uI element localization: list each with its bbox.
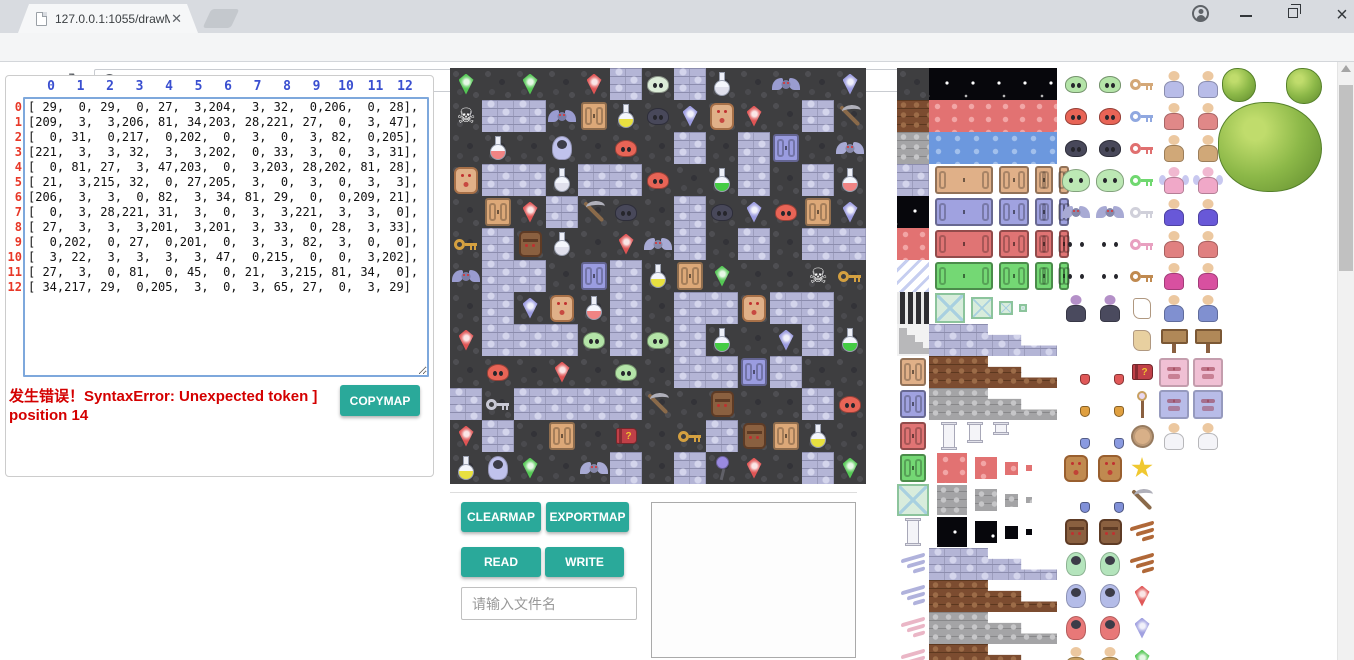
map-tile[interactable] (642, 228, 674, 260)
tileset-item-tile[interactable]: ? (1126, 356, 1158, 388)
map-tile[interactable] (450, 164, 482, 196)
tileset-big-tile[interactable] (929, 612, 1057, 644)
tileset-big-tile[interactable] (929, 580, 1057, 612)
tileset-terrain-tile[interactable] (897, 548, 929, 580)
map-tile[interactable] (802, 132, 834, 164)
copymap-button[interactable]: COPYMAP (340, 385, 420, 416)
tileset-item-tile[interactable] (1126, 132, 1158, 164)
tileset-creature-tile[interactable] (1094, 292, 1126, 324)
map-tile[interactable] (706, 68, 738, 100)
map-tile[interactable] (770, 68, 802, 100)
tileset-creature-tile[interactable] (1094, 100, 1126, 132)
map-tile[interactable] (578, 260, 610, 292)
filename-input[interactable] (461, 587, 637, 620)
map-tile[interactable] (642, 324, 674, 356)
map-tile[interactable] (738, 388, 770, 420)
map-tile[interactable] (834, 228, 866, 260)
map-tile[interactable] (770, 356, 802, 388)
tileset-item-tile[interactable] (1126, 68, 1158, 100)
tileset-creature-tile[interactable] (1094, 644, 1126, 660)
tileset-terrain-tile[interactable] (897, 516, 929, 548)
tileset-tree-tile[interactable] (1286, 68, 1322, 104)
map-tile[interactable] (642, 100, 674, 132)
tileset-big-tile[interactable] (929, 68, 1057, 100)
tileset-creature-tile[interactable] (1060, 196, 1092, 228)
map-tile[interactable] (450, 68, 482, 100)
tileset-creature-tile[interactable] (1094, 68, 1126, 100)
map-tile[interactable] (834, 324, 866, 356)
map-tile[interactable] (642, 260, 674, 292)
map-tile[interactable] (546, 132, 578, 164)
tileset-character-tile[interactable] (1192, 196, 1224, 228)
tileset-character-tile[interactable] (1158, 324, 1190, 356)
map-tile[interactable] (514, 100, 546, 132)
tileset-creature-tile[interactable] (1094, 260, 1126, 292)
map-tile[interactable] (770, 100, 802, 132)
map-tile[interactable] (706, 196, 738, 228)
map-tile[interactable] (514, 452, 546, 484)
tileset-item-tile[interactable] (1126, 292, 1158, 324)
tileset-creature-tile[interactable]: ☠ (1094, 484, 1126, 516)
map-tile[interactable] (706, 164, 738, 196)
map-tile[interactable] (674, 324, 706, 356)
tileset-creature-tile[interactable] (1094, 516, 1126, 548)
map-tile[interactable] (610, 100, 642, 132)
tileset-character-tile[interactable] (1192, 420, 1224, 452)
tileset-creature-tile[interactable] (1060, 228, 1092, 260)
map-tile[interactable] (834, 420, 866, 452)
map-tile[interactable] (834, 196, 866, 228)
tileset-terrain-tile[interactable] (897, 292, 929, 324)
tileset-character-tile[interactable] (1192, 324, 1224, 356)
map-tile[interactable] (450, 420, 482, 452)
tileset-item-tile[interactable] (1126, 516, 1158, 548)
map-tile[interactable] (546, 196, 578, 228)
map-tile[interactable]: ☠ (802, 260, 834, 292)
tileset-terrain-tile[interactable] (897, 484, 929, 516)
map-tile[interactable] (738, 292, 770, 324)
tileset-item-tile[interactable] (1126, 100, 1158, 132)
tileset-creature-tile[interactable] (1094, 132, 1126, 164)
map-tile[interactable] (450, 452, 482, 484)
map-tile[interactable] (834, 356, 866, 388)
map-tile[interactable] (706, 452, 738, 484)
map-tile[interactable] (738, 196, 770, 228)
map-tile[interactable]: ? (610, 420, 642, 452)
map-tile[interactable] (482, 420, 514, 452)
tileset-character-tile[interactable] (1158, 68, 1190, 100)
map-tile[interactable] (578, 388, 610, 420)
tileset-creature-tile[interactable] (1094, 164, 1126, 196)
map-tile[interactable] (546, 68, 578, 100)
map-tile[interactable] (546, 388, 578, 420)
tileset-item-tile[interactable] (1126, 228, 1158, 260)
map-tile[interactable] (642, 388, 674, 420)
tileset-big-tile[interactable] (929, 356, 1057, 388)
map-tile[interactable] (706, 324, 738, 356)
map-tile[interactable] (546, 356, 578, 388)
tileset-terrain-tile[interactable] (897, 228, 929, 260)
map-tile[interactable] (674, 292, 706, 324)
map-tile[interactable] (610, 292, 642, 324)
tileset-creature-tile[interactable] (1060, 68, 1092, 100)
tileset-big-tile[interactable] (929, 484, 1057, 516)
map-tile[interactable] (706, 132, 738, 164)
map-tile[interactable] (770, 228, 802, 260)
map-canvas[interactable]: ☠☠? (450, 68, 866, 484)
tileset-item-tile[interactable] (1126, 196, 1158, 228)
map-tile[interactable] (546, 164, 578, 196)
write-button[interactable]: WRITE (545, 547, 624, 577)
map-tile[interactable] (802, 420, 834, 452)
tileset-creature-tile[interactable] (1060, 292, 1092, 324)
map-tile[interactable] (802, 100, 834, 132)
map-tile[interactable] (610, 260, 642, 292)
map-tile[interactable] (738, 420, 770, 452)
map-tile[interactable] (706, 228, 738, 260)
map-tile[interactable] (642, 68, 674, 100)
map-tile[interactable] (482, 132, 514, 164)
map-tile[interactable] (642, 196, 674, 228)
tileset-creature-tile[interactable] (1060, 516, 1092, 548)
map-tile[interactable] (546, 324, 578, 356)
map-tile[interactable] (610, 228, 642, 260)
map-tile[interactable] (802, 388, 834, 420)
map-tile[interactable] (578, 452, 610, 484)
tileset-creature-tile[interactable] (1060, 260, 1092, 292)
map-tile[interactable] (642, 356, 674, 388)
map-tile[interactable] (482, 452, 514, 484)
tileset-creature-tile[interactable]: ☠ (1060, 420, 1092, 452)
tileset-character-tile[interactable] (1158, 420, 1190, 452)
tileset-character-tile[interactable] (1158, 292, 1190, 324)
tileset-tree-tile[interactable] (1222, 68, 1256, 102)
tileset-character-tile[interactable] (1158, 164, 1190, 196)
map-tile[interactable] (514, 228, 546, 260)
map-tile[interactable] (450, 132, 482, 164)
map-tile[interactable] (674, 196, 706, 228)
map-tile[interactable] (578, 356, 610, 388)
tileset-terrain-tile[interactable] (897, 100, 929, 132)
map-tile[interactable] (514, 68, 546, 100)
map-tile[interactable] (482, 68, 514, 100)
tileset-item-tile[interactable] (1126, 260, 1158, 292)
map-tile[interactable] (802, 452, 834, 484)
map-tile[interactable] (610, 164, 642, 196)
tileset-item-tile[interactable] (1126, 452, 1158, 484)
tileset-terrain-tile[interactable] (897, 452, 929, 484)
tileset-creature-tile[interactable]: ☠ (1094, 324, 1126, 356)
map-tile[interactable] (802, 356, 834, 388)
tileset-creature-tile[interactable]: ☠ (1094, 356, 1126, 388)
tileset-terrain-tile[interactable] (897, 612, 929, 644)
window-minimize-button[interactable] (1240, 15, 1252, 17)
map-tile[interactable] (834, 260, 866, 292)
map-tile[interactable] (834, 292, 866, 324)
tileset-character-tile[interactable] (1192, 388, 1224, 420)
tileset-creature-tile[interactable] (1094, 580, 1126, 612)
tileset-terrain-tile[interactable] (897, 164, 929, 196)
tileset-character-tile[interactable] (1158, 100, 1190, 132)
tileset-item-tile[interactable] (1126, 612, 1158, 644)
map-tile[interactable] (546, 292, 578, 324)
map-tile[interactable] (642, 452, 674, 484)
map-tile[interactable] (450, 356, 482, 388)
map-tile[interactable] (802, 68, 834, 100)
map-tile[interactable] (674, 228, 706, 260)
map-tile[interactable] (642, 132, 674, 164)
tileset-creature-tile[interactable]: ☠ (1094, 420, 1126, 452)
map-tile[interactable] (770, 132, 802, 164)
map-tile[interactable] (834, 100, 866, 132)
tileset-character-tile[interactable] (1158, 132, 1190, 164)
tileset-big-tile[interactable] (929, 452, 1057, 484)
tileset-character-tile[interactable] (1192, 228, 1224, 260)
map-tile[interactable] (770, 452, 802, 484)
matrix-textarea[interactable] (23, 97, 429, 377)
map-tile[interactable] (450, 228, 482, 260)
map-tile[interactable] (546, 452, 578, 484)
map-tile[interactable] (738, 68, 770, 100)
map-tile[interactable] (514, 356, 546, 388)
map-tile[interactable] (546, 420, 578, 452)
tileset-character-tile[interactable] (1158, 260, 1190, 292)
map-tile[interactable] (610, 196, 642, 228)
map-tile[interactable] (770, 388, 802, 420)
window-restore-button[interactable] (1288, 8, 1298, 18)
map-tile[interactable] (482, 228, 514, 260)
tileset-character-tile[interactable] (1192, 68, 1224, 100)
tileset-tree-tile[interactable] (1218, 102, 1322, 192)
tileset-character-tile[interactable] (1158, 228, 1190, 260)
map-tile[interactable] (514, 132, 546, 164)
map-tile[interactable] (578, 324, 610, 356)
tileset-terrain-tile[interactable] (897, 388, 929, 420)
output-box[interactable] (651, 502, 856, 658)
map-tile[interactable]: ☠ (450, 100, 482, 132)
map-tile[interactable] (770, 420, 802, 452)
window-close-button[interactable]: × (1332, 4, 1352, 26)
map-tile[interactable] (802, 196, 834, 228)
tileset-creature-tile[interactable]: ☠ (1060, 484, 1092, 516)
tileset-creature-tile[interactable] (1060, 452, 1092, 484)
map-tile[interactable] (514, 420, 546, 452)
browser-tab[interactable]: 127.0.0.1:1055/drawMa ✕ (18, 4, 198, 33)
map-tile[interactable] (578, 228, 610, 260)
map-tile[interactable] (578, 292, 610, 324)
map-tile[interactable] (738, 452, 770, 484)
tileset-creature-tile[interactable] (1060, 644, 1092, 660)
map-tile[interactable] (706, 388, 738, 420)
tileset-big-tile[interactable] (929, 228, 1057, 260)
tileset-creature-tile[interactable]: ☠ (1060, 388, 1092, 420)
tileset-big-tile[interactable] (929, 132, 1057, 164)
map-tile[interactable] (578, 132, 610, 164)
tileset-big-tile[interactable] (929, 388, 1057, 420)
map-tile[interactable] (706, 292, 738, 324)
map-tile[interactable] (482, 324, 514, 356)
map-tile[interactable] (834, 132, 866, 164)
tileset-item-tile[interactable] (1126, 324, 1158, 356)
map-tile[interactable] (450, 388, 482, 420)
map-tile[interactable] (514, 292, 546, 324)
map-tile[interactable] (482, 100, 514, 132)
tileset-big-tile[interactable] (929, 164, 1057, 196)
map-tile[interactable] (450, 324, 482, 356)
map-tile[interactable] (642, 164, 674, 196)
tileset-big-tile[interactable] (929, 292, 1057, 324)
map-tile[interactable] (578, 100, 610, 132)
tileset-terrain-tile[interactable] (897, 644, 929, 660)
tileset-terrain-tile[interactable] (897, 132, 929, 164)
tileset-big-tile[interactable] (929, 548, 1057, 580)
map-tile[interactable] (578, 164, 610, 196)
map-tile[interactable] (610, 356, 642, 388)
tileset-big-tile[interactable] (929, 420, 1057, 452)
tileset-item-tile[interactable] (1126, 164, 1158, 196)
tileset-big-tile[interactable] (929, 644, 1057, 660)
map-tile[interactable] (514, 260, 546, 292)
map-tile[interactable] (578, 420, 610, 452)
clearmap-button[interactable]: CLEARMAP (461, 502, 541, 532)
map-tile[interactable] (610, 388, 642, 420)
tileset-item-tile[interactable] (1126, 420, 1158, 452)
tileset-big-tile[interactable] (929, 100, 1057, 132)
map-tile[interactable] (738, 356, 770, 388)
tileset-creature-tile[interactable] (1060, 100, 1092, 132)
map-tile[interactable] (738, 164, 770, 196)
map-tile[interactable] (770, 260, 802, 292)
map-tile[interactable] (674, 260, 706, 292)
map-tile[interactable] (674, 100, 706, 132)
read-button[interactable]: READ (461, 547, 541, 577)
tileset-terrain-tile[interactable] (897, 260, 929, 292)
map-tile[interactable] (770, 196, 802, 228)
map-tile[interactable] (770, 324, 802, 356)
tileset-character-tile[interactable] (1192, 292, 1224, 324)
map-tile[interactable] (514, 388, 546, 420)
map-tile[interactable] (546, 100, 578, 132)
tileset-character-tile[interactable] (1192, 356, 1224, 388)
scrollbar-up-arrow-icon[interactable] (1341, 65, 1351, 72)
new-tab-button[interactable] (203, 9, 240, 28)
map-tile[interactable] (770, 164, 802, 196)
tileset-item-tile[interactable] (1126, 580, 1158, 612)
profile-icon[interactable] (1192, 5, 1209, 22)
map-tile[interactable] (706, 420, 738, 452)
map-tile[interactable] (482, 164, 514, 196)
tileset-creature-tile[interactable] (1060, 580, 1092, 612)
map-tile[interactable] (706, 356, 738, 388)
map-tile[interactable] (674, 132, 706, 164)
page-scrollbar[interactable] (1337, 62, 1354, 660)
map-tile[interactable] (674, 420, 706, 452)
tileset-item-tile[interactable] (1126, 484, 1158, 516)
tileset-terrain-tile[interactable] (897, 356, 929, 388)
map-tile[interactable] (610, 68, 642, 100)
tileset-creature-tile[interactable]: ☠ (1060, 324, 1092, 356)
map-tile[interactable] (834, 452, 866, 484)
tileset-creature-tile[interactable] (1094, 196, 1126, 228)
map-tile[interactable] (674, 164, 706, 196)
tileset-creature-tile[interactable] (1060, 132, 1092, 164)
tileset-character-tile[interactable] (1158, 196, 1190, 228)
map-tile[interactable] (802, 228, 834, 260)
map-tile[interactable] (450, 196, 482, 228)
map-tile[interactable] (674, 388, 706, 420)
map-tile[interactable] (674, 356, 706, 388)
tileset-terrain-tile[interactable] (897, 420, 929, 452)
map-tile[interactable] (706, 100, 738, 132)
tileset-creature-tile[interactable] (1060, 612, 1092, 644)
map-tile[interactable] (834, 388, 866, 420)
map-tile[interactable] (706, 260, 738, 292)
map-tile[interactable] (738, 260, 770, 292)
tileset-terrain-tile[interactable] (897, 324, 929, 356)
tileset-creature-tile[interactable] (1060, 548, 1092, 580)
tileset-item-tile[interactable] (1126, 388, 1158, 420)
tileset-creature-tile[interactable] (1094, 228, 1126, 260)
tileset-creature-tile[interactable] (1060, 164, 1092, 196)
map-tile[interactable] (514, 196, 546, 228)
map-tile[interactable] (482, 388, 514, 420)
map-tile[interactable] (482, 260, 514, 292)
tileset-big-tile[interactable] (929, 324, 1057, 356)
map-tile[interactable] (834, 68, 866, 100)
map-tile[interactable] (610, 132, 642, 164)
tab-close-icon[interactable]: ✕ (171, 12, 182, 25)
map-tile[interactable] (738, 132, 770, 164)
exportmap-button[interactable]: EXPORTMAP (546, 502, 629, 532)
map-tile[interactable] (514, 164, 546, 196)
map-tile[interactable] (482, 292, 514, 324)
map-tile[interactable] (546, 228, 578, 260)
map-tile[interactable] (482, 196, 514, 228)
tileset-terrain-tile[interactable] (897, 196, 929, 228)
tileset-item-tile[interactable] (1126, 548, 1158, 580)
tileset-item-tile[interactable] (1126, 644, 1158, 660)
tileset-panel[interactable]: ☠☠☠☠☠☠☠☠☠☠? (897, 68, 1322, 660)
map-tile[interactable] (642, 292, 674, 324)
tileset-character-tile[interactable] (1158, 388, 1190, 420)
map-tile[interactable] (802, 164, 834, 196)
tileset-terrain-tile[interactable] (897, 580, 929, 612)
map-tile[interactable] (450, 260, 482, 292)
tileset-creature-tile[interactable]: ☠ (1060, 356, 1092, 388)
map-tile[interactable] (450, 292, 482, 324)
map-tile[interactable] (802, 292, 834, 324)
map-tile[interactable] (834, 164, 866, 196)
map-tile[interactable] (770, 292, 802, 324)
tileset-creature-tile[interactable] (1094, 452, 1126, 484)
tileset-creature-tile[interactable] (1094, 612, 1126, 644)
tileset-character-tile[interactable] (1158, 356, 1190, 388)
map-tile[interactable] (642, 420, 674, 452)
map-tile[interactable] (610, 452, 642, 484)
tileset-creature-tile[interactable]: ☠ (1094, 388, 1126, 420)
map-tile[interactable] (738, 228, 770, 260)
map-tile[interactable] (674, 452, 706, 484)
tileset-terrain-tile[interactable] (897, 68, 929, 100)
tileset-big-tile[interactable] (929, 196, 1057, 228)
tileset-big-tile[interactable] (929, 516, 1057, 548)
map-tile[interactable] (578, 68, 610, 100)
map-tile[interactable] (482, 356, 514, 388)
scrollbar-thumb[interactable] (1339, 85, 1353, 271)
tileset-character-tile[interactable] (1192, 260, 1224, 292)
map-tile[interactable] (578, 196, 610, 228)
tileset-big-tile[interactable] (929, 260, 1057, 292)
